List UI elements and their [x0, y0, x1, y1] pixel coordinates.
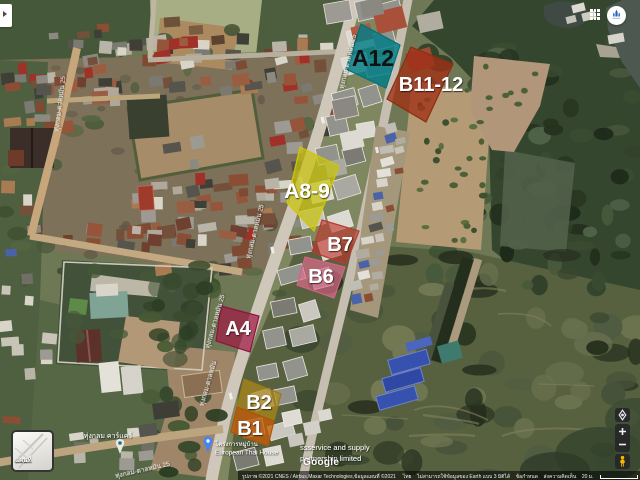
svg-text:ssservice and supply: ssservice and supply [300, 443, 370, 452]
svg-text:โครงการหมู่บ้าน: โครงการหมู่บ้าน [215, 440, 258, 448]
svg-text:ทุ่งกลม คาร์แคร์: ทุ่งกลม คาร์แคร์ [84, 432, 133, 440]
svg-text:A8-9: A8-9 [284, 180, 330, 203]
svg-text:B7: B7 [327, 234, 353, 256]
svg-text:B6: B6 [308, 266, 334, 288]
svg-text:European Thai House: European Thai House [215, 450, 279, 457]
svg-text:A12: A12 [352, 45, 394, 71]
svg-text:B2: B2 [246, 392, 272, 414]
svg-text:A4: A4 [225, 318, 251, 340]
svg-text:B1: B1 [237, 418, 263, 440]
svg-text:B11-12: B11-12 [399, 74, 464, 96]
